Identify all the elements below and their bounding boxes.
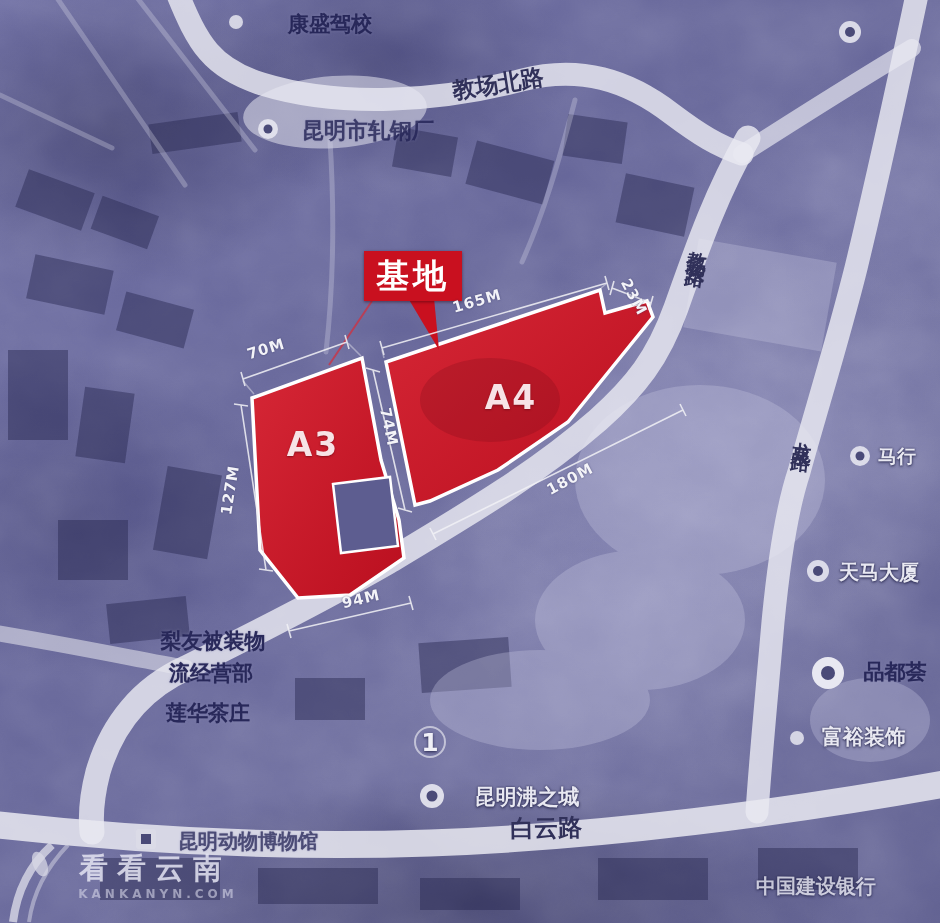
mahang-icon-center (856, 452, 865, 461)
tianma-tower-icon-center (813, 566, 823, 576)
feizhicheng-icon-center (427, 791, 438, 802)
poi-label-bedding-line1: 梨友被装物 (161, 627, 266, 655)
parcel-a3-label: A3 (287, 425, 340, 464)
site-callout-label: 基地 (376, 254, 450, 299)
poi-label-steel-mill: 昆明市轧钢厂 (302, 116, 434, 146)
poi-label-driving-school: 康盛驾校 (288, 10, 372, 38)
parcel-a4-label: A4 (485, 378, 538, 417)
satellite-map: 康盛驾校 昆明市轧钢厂 教场北路 教场东路 龙泉路 白云路 基地 A3 A4 7… (0, 0, 940, 923)
parcel-a3-notch (333, 477, 398, 553)
poi-label-ccb-bank: 中国建设银行 (756, 873, 876, 900)
route-marker-1: 1 (421, 728, 438, 757)
site-callout: 基地 (364, 251, 462, 301)
museum-icon-center (141, 834, 151, 844)
poi-label-tianma-tower: 天马大厦 (839, 559, 919, 586)
fuyu-decor-icon (790, 731, 804, 745)
watermark-domain: KANKANYN.COM (78, 887, 238, 901)
steel-mill-icon-center (264, 125, 273, 134)
road-label-baiyun: 白云路 (510, 811, 583, 844)
watermark-brand: 看看云南 (79, 849, 231, 889)
poi-label-bedding-line2: 流经营部 (169, 659, 253, 687)
top-right-poi-icon-center (845, 27, 855, 37)
map-graphics (0, 0, 940, 923)
road-label-longquan: 龙泉路 (791, 424, 820, 442)
poi-label-fuyu-decor: 富裕装饰 (822, 723, 906, 751)
pinduhui-icon-center (821, 666, 835, 680)
poi-label-feizhicheng: 昆明沸之城 (475, 783, 580, 811)
poi-label-tea-house: 莲华茶庄 (166, 699, 250, 727)
poi-label-mahang: 马行 (878, 444, 916, 470)
poi-label-pinduhui: 品都荟 (864, 658, 927, 686)
road-label-jiaochang-east: 教场东路 (685, 234, 715, 258)
driving-school-icon (229, 15, 243, 29)
